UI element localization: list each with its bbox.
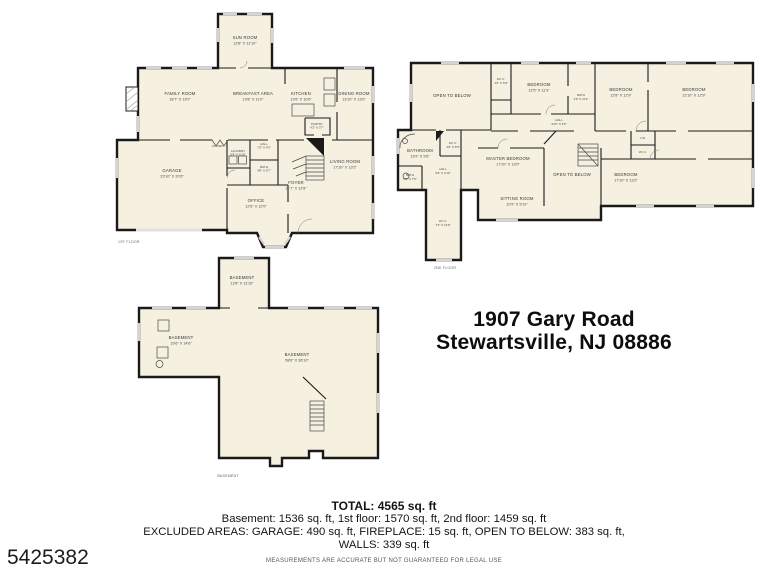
floorplan-page: SUN ROOM 12'8" X 11'10" FAMILY ROOM 18'7… — [0, 0, 768, 576]
room-dims: 58'6" X 36'10" — [285, 359, 309, 363]
disclaimer: MEASUREMENTS ARE ACCURATE BUT NOT GUARAN… — [0, 558, 768, 564]
room-label: OPEN TO BELOW — [553, 172, 592, 177]
room-dims: 12'8" X 11'10" — [233, 42, 257, 46]
room-label: BEDROOM — [609, 87, 633, 92]
room-dims: 17'10" X 13'2" — [614, 179, 638, 183]
address-line2: Stewartsville, NJ 08886 — [398, 331, 710, 354]
total-area: TOTAL: 4565 sq. ft — [0, 499, 768, 513]
room-dims: 24'6" X 3'5" — [551, 122, 566, 126]
room-label: BREAKFAST AREA — [233, 91, 273, 96]
room-dims: 13'6" X 10'6" — [290, 98, 312, 102]
room-dims: 23'10" X 20'6" — [160, 175, 184, 179]
walls-area: WALLS: 339 sq. ft — [0, 539, 768, 552]
floor-caption: 1ST FLOOR — [118, 240, 140, 244]
room-label: SUN ROOM — [233, 35, 258, 40]
room-dims: 9'6" X 2'10" — [435, 171, 450, 175]
room-label: W.I.C. — [639, 150, 647, 154]
room-dims: 6'3" X 7'0" — [403, 177, 417, 181]
room-label: BATHROOM — [407, 148, 433, 153]
address-line1: 1907 Gary Road — [398, 308, 710, 331]
room-label: BASEMENT — [230, 275, 255, 280]
room-label: BEDROOM — [682, 87, 706, 92]
room-label: BASEMENT — [169, 335, 194, 340]
room-label: MASTER BEDROOM — [486, 156, 530, 161]
room-dims: 13'10" X 13'0" — [342, 98, 366, 102]
basement-plan: BASEMENT 12'8" X 11'10" BASEMENT 19'6" X… — [128, 253, 418, 488]
room-label: KITCHEN — [291, 91, 311, 96]
room-label: FAMILY ROOM — [164, 91, 195, 96]
mls-number: 5425382 — [7, 546, 89, 570]
room-dims: 12'8" X 12'9" — [610, 94, 632, 98]
room-label: LIVING ROOM — [330, 159, 361, 164]
room-dims: 19'6" X 14'6" — [170, 342, 192, 346]
room-dims: 4'2" X 5'8" — [494, 81, 508, 85]
room-label: DINING ROOM — [338, 91, 370, 96]
room-label: CLOSET — [212, 144, 224, 148]
room-dims: 12'8" X 11'10" — [230, 282, 254, 286]
area-summary: TOTAL: 4565 sq. ft Basement: 1536 sq. ft… — [0, 499, 768, 564]
room-dims: 17'10" X 13'2" — [333, 166, 357, 170]
room-dims: 12'10" X 12'9" — [682, 94, 706, 98]
room-dims: 12'5" X 11'3" — [528, 89, 550, 93]
floor-areas: Basement: 1536 sq. ft, 1st floor: 1570 s… — [0, 513, 768, 526]
room-label: FOYER — [288, 180, 304, 185]
floor-caption: 2ND FLOOR — [434, 266, 457, 270]
first-floor-plan: SUN ROOM 12'8" X 11'10" FAMILY ROOM 18'7… — [108, 6, 388, 256]
room-label: OFFICE — [248, 198, 265, 203]
room-dims: 4'6" X 5'5" — [446, 145, 460, 149]
room-dims: 12'6" X 12'0" — [245, 205, 267, 209]
room-dims: 7'0" X 4'3" — [257, 146, 271, 150]
room-label: OPEN TO BELOW — [433, 93, 472, 98]
excluded-areas: EXCLUDED AREAS: GARAGE: 490 sq. ft, FIRE… — [0, 526, 768, 539]
room-dims: 11'7" X 12'8" — [285, 187, 307, 191]
floor-caption: BASEMENT — [217, 474, 239, 478]
room-dims: 10'9" X 9'10" — [506, 203, 528, 207]
room-dims: 17'10" X 13'0" — [496, 163, 520, 167]
room-label: BEDROOM — [527, 82, 551, 87]
room-dims: 13'8" X 11'0" — [242, 98, 264, 102]
first-floor-outline — [117, 14, 373, 247]
room-dims: 7'4" X 14'6" — [435, 223, 450, 227]
room-label: BEDROOM — [614, 172, 638, 177]
room-dims: 5'8" X 6'10" — [230, 153, 245, 157]
room-label: GARAGE — [162, 168, 181, 173]
room-dims: 4'2" X 3'7" — [310, 126, 324, 130]
room-label: LIN. — [640, 136, 646, 140]
second-floor-plan: OPEN TO BELOW W.I.C. 4'2" X 5'8" BEDROOM… — [396, 56, 761, 274]
fireplace — [126, 87, 138, 111]
property-address: 1907 Gary Road Stewartsville, NJ 08886 — [398, 308, 710, 354]
room-dims: 18'7" X 13'0" — [169, 98, 191, 102]
room-dims: 4'9" X 11'2" — [573, 97, 588, 101]
basement-outline — [139, 258, 378, 466]
room-label: BASEMENT — [285, 352, 310, 357]
room-label: SITTING ROOM — [500, 196, 534, 201]
room-dims: 13'9" X 9'6" — [410, 155, 430, 159]
room-dims: 4'8" X 5'7" — [257, 169, 271, 173]
